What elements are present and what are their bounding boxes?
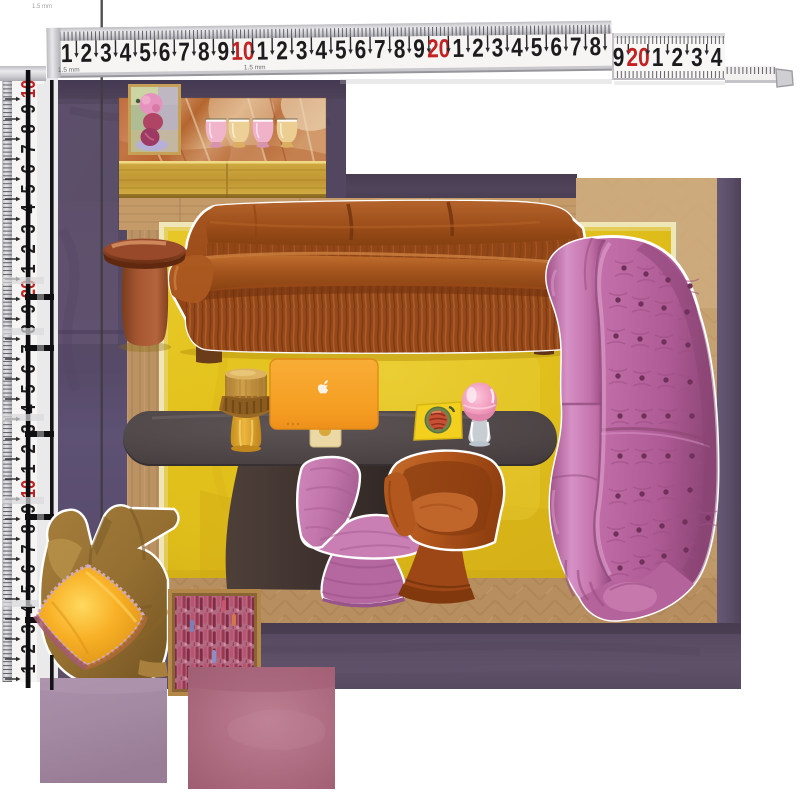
svg-text:3: 3 xyxy=(491,33,503,62)
svg-text:4: 4 xyxy=(119,38,131,67)
svg-text:7: 7 xyxy=(570,32,582,61)
svg-text:1.5 mm: 1.5 mm xyxy=(32,4,52,10)
svg-text:8: 8 xyxy=(589,32,601,61)
svg-text:3: 3 xyxy=(296,36,308,65)
svg-text:5: 5 xyxy=(139,38,151,67)
svg-text:1.5 mm: 1.5 mm xyxy=(244,64,266,71)
svg-text:3: 3 xyxy=(100,38,112,67)
svg-text:5: 5 xyxy=(531,33,543,62)
svg-text:6: 6 xyxy=(550,32,562,61)
svg-text:7: 7 xyxy=(374,35,386,64)
svg-text:1.5 mm: 1.5 mm xyxy=(58,67,80,74)
svg-text:9: 9 xyxy=(613,43,625,72)
svg-text:4: 4 xyxy=(315,35,327,64)
svg-text:8: 8 xyxy=(198,37,210,66)
svg-text:5: 5 xyxy=(335,35,347,64)
svg-text:8: 8 xyxy=(394,34,406,63)
svg-text:1: 1 xyxy=(61,39,73,68)
svg-text:6: 6 xyxy=(354,35,366,64)
svg-text:2: 2 xyxy=(472,33,484,62)
svg-text:20: 20 xyxy=(627,43,650,72)
svg-text:4: 4 xyxy=(511,33,523,62)
svg-text:4: 4 xyxy=(711,43,723,72)
svg-text:1: 1 xyxy=(652,43,664,72)
svg-text:1: 1 xyxy=(452,34,464,63)
svg-text:2: 2 xyxy=(80,39,92,68)
svg-text:2: 2 xyxy=(276,36,288,65)
svg-text:3: 3 xyxy=(691,43,703,72)
svg-text:1: 1 xyxy=(257,36,269,65)
svg-text:2: 2 xyxy=(672,43,684,72)
svg-text:6: 6 xyxy=(159,38,171,67)
svg-text:9: 9 xyxy=(217,37,229,66)
svg-text:9: 9 xyxy=(413,34,425,63)
svg-text:7: 7 xyxy=(178,37,190,66)
